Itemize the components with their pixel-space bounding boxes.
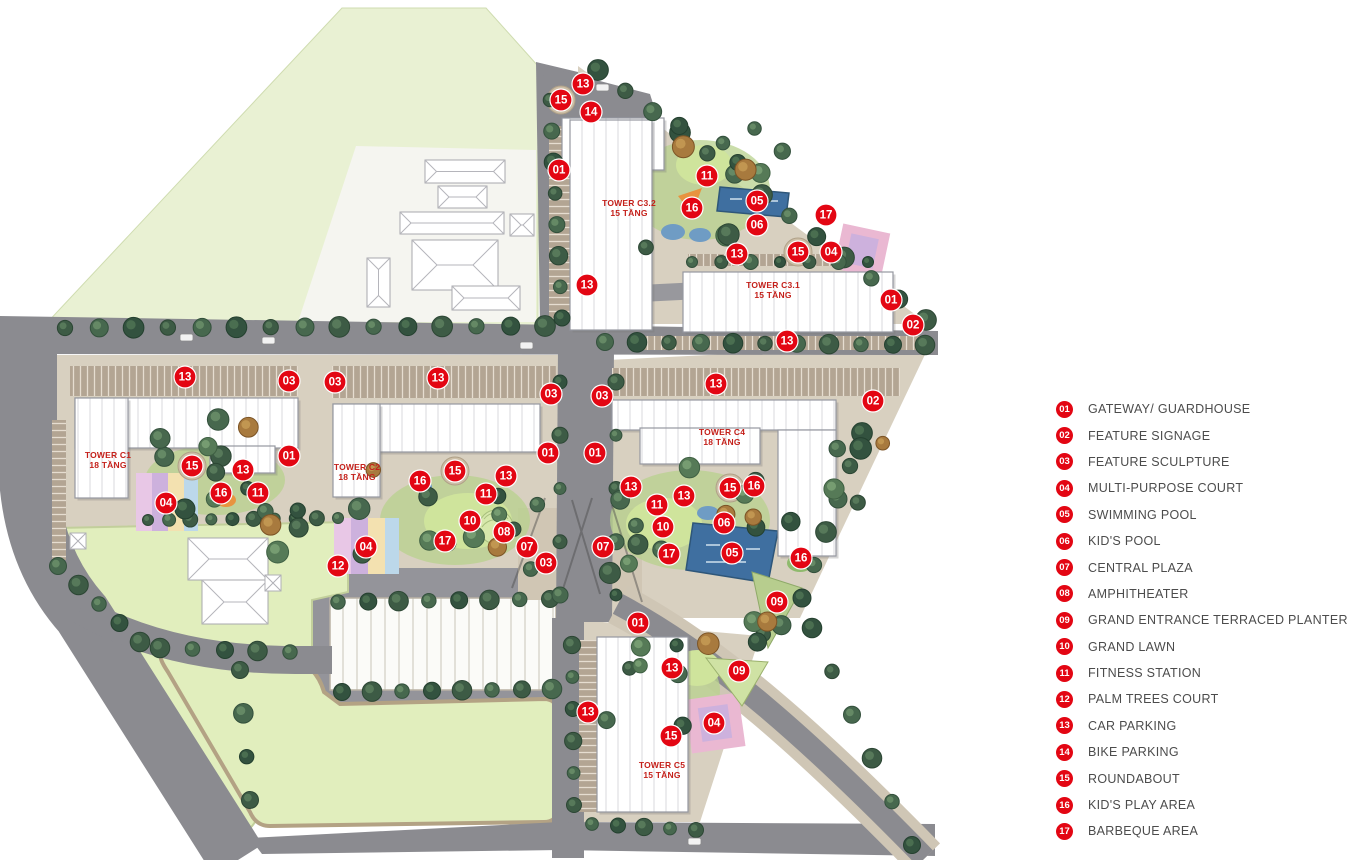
map-marker-11: 11	[646, 494, 668, 516]
legend-number-badge: 08	[1056, 585, 1073, 602]
map-marker-13: 13	[576, 274, 598, 296]
legend-label: GRAND LAWN	[1088, 640, 1175, 654]
map-marker-07: 07	[516, 536, 538, 558]
legend-item-16: 16 KID'S PLAY AREA	[1056, 792, 1346, 818]
svg-text:15: 15	[449, 466, 462, 478]
map-marker-01: 01	[537, 442, 559, 464]
legend-number-badge: 10	[1056, 638, 1073, 655]
svg-text:13: 13	[581, 280, 594, 292]
map-marker-13: 13	[232, 459, 254, 481]
legend-label: BARBEQUE AREA	[1088, 824, 1198, 838]
legend-item-03: 03 FEATURE SCULPTURE	[1056, 449, 1346, 475]
svg-text:07: 07	[597, 542, 610, 554]
legend-number-badge: 01	[1056, 401, 1073, 418]
map-marker-16: 16	[409, 470, 431, 492]
svg-text:05: 05	[726, 548, 739, 560]
map-marker-04: 04	[355, 536, 377, 558]
svg-text:03: 03	[540, 558, 553, 570]
legend-number-badge: 03	[1056, 453, 1073, 470]
map-marker-05: 05	[746, 190, 768, 212]
tower-label: TOWER C515 TẦNG	[639, 760, 685, 780]
legend-label: GATEWAY/ GUARDHOUSE	[1088, 402, 1250, 416]
svg-text:13: 13	[781, 336, 794, 348]
map-marker-05: 05	[721, 542, 743, 564]
legend-item-11: 11 FITNESS STATION	[1056, 660, 1346, 686]
svg-text:17: 17	[439, 536, 452, 548]
svg-text:06: 06	[751, 220, 764, 232]
car	[688, 838, 701, 845]
map-marker-13: 13	[705, 373, 727, 395]
map-marker-10: 10	[459, 510, 481, 532]
map-marker-15: 15	[660, 725, 682, 747]
svg-text:TOWER C3.1: TOWER C3.1	[746, 280, 800, 290]
legend-label: CENTRAL PLAZA	[1088, 561, 1193, 575]
svg-text:01: 01	[589, 448, 602, 460]
parking-lot	[330, 598, 556, 690]
legend: 01 GATEWAY/ GUARDHOUSE 02 FEATURE SIGNAG…	[1056, 396, 1346, 845]
map-marker-01: 01	[584, 442, 606, 464]
svg-text:17: 17	[820, 210, 833, 222]
legend-number-badge: 07	[1056, 559, 1073, 576]
svg-text:18 TẦNG: 18 TẦNG	[703, 437, 740, 447]
map-marker-17: 17	[658, 543, 680, 565]
svg-text:06: 06	[718, 518, 731, 530]
legend-label: SWIMMING POOL	[1088, 508, 1197, 522]
legend-number-badge: 06	[1056, 533, 1073, 550]
tower-building	[75, 398, 128, 498]
map-marker-12: 12	[327, 555, 349, 577]
svg-text:02: 02	[867, 396, 880, 408]
legend-label: GRAND ENTRANCE TERRACED PLANTER	[1088, 613, 1348, 627]
map-marker-08: 08	[493, 521, 515, 543]
svg-text:04: 04	[360, 542, 373, 554]
map-marker-03: 03	[591, 385, 613, 407]
map-marker-16: 16	[790, 547, 812, 569]
legend-number-badge: 14	[1056, 744, 1073, 761]
legend-item-09: 09 GRAND ENTRANCE TERRACED PLANTER	[1056, 607, 1346, 633]
legend-label: FEATURE SCULPTURE	[1088, 455, 1230, 469]
svg-text:15: 15	[792, 247, 805, 259]
svg-text:04: 04	[825, 247, 838, 259]
map-marker-13: 13	[572, 73, 594, 95]
legend-item-17: 17 BARBEQUE AREA	[1056, 818, 1346, 844]
map-marker-15: 15	[444, 460, 466, 482]
map-marker-16: 16	[210, 482, 232, 504]
svg-text:15 TẦNG: 15 TẦNG	[610, 208, 647, 218]
map-marker-13: 13	[620, 476, 642, 498]
legend-item-01: 01 GATEWAY/ GUARDHOUSE	[1056, 396, 1346, 422]
svg-text:18 TẦNG: 18 TẦNG	[89, 460, 126, 470]
svg-text:13: 13	[678, 491, 691, 503]
tower-label: TOWER C218 TẦNG	[334, 462, 380, 482]
svg-text:01: 01	[542, 448, 555, 460]
svg-text:13: 13	[710, 379, 723, 391]
svg-text:01: 01	[885, 295, 898, 307]
svg-text:03: 03	[545, 389, 558, 401]
legend-label: MULTI-PURPOSE COURT	[1088, 481, 1243, 495]
legend-number-badge: 12	[1056, 691, 1073, 708]
svg-text:15: 15	[555, 95, 568, 107]
map-marker-13: 13	[726, 243, 748, 265]
legend-number-badge: 02	[1056, 427, 1073, 444]
car	[262, 337, 275, 344]
svg-text:11: 11	[701, 171, 714, 183]
legend-label: BIKE PARKING	[1088, 745, 1179, 759]
svg-text:13: 13	[666, 663, 679, 675]
kids-pool-north	[689, 228, 711, 242]
map-marker-06: 06	[713, 512, 735, 534]
svg-text:TOWER C3.2: TOWER C3.2	[602, 198, 656, 208]
map-marker-09: 09	[766, 591, 788, 613]
map-marker-17: 17	[434, 530, 456, 552]
map-marker-01: 01	[880, 289, 902, 311]
map-marker-16: 16	[681, 197, 703, 219]
car	[180, 334, 193, 341]
svg-text:15: 15	[186, 461, 199, 473]
svg-text:08: 08	[498, 527, 511, 539]
legend-number-badge: 04	[1056, 480, 1073, 497]
legend-item-08: 08 AMPHITHEATER	[1056, 581, 1346, 607]
map-marker-06: 06	[746, 214, 768, 236]
legend-number-badge: 05	[1056, 506, 1073, 523]
svg-text:13: 13	[582, 707, 595, 719]
map-marker-17: 17	[815, 204, 837, 226]
svg-text:13: 13	[237, 465, 250, 477]
map-marker-03: 03	[324, 371, 346, 393]
svg-text:01: 01	[553, 165, 566, 177]
legend-number-badge: 16	[1056, 797, 1073, 814]
svg-text:15 TẦNG: 15 TẦNG	[754, 290, 791, 300]
map-marker-13: 13	[776, 330, 798, 352]
map-marker-02: 02	[902, 314, 924, 336]
map-marker-04: 04	[703, 712, 725, 734]
map-marker-11: 11	[696, 165, 718, 187]
svg-text:03: 03	[596, 391, 609, 403]
map-marker-13: 13	[427, 367, 449, 389]
map-marker-01: 01	[548, 159, 570, 181]
map-marker-13: 13	[174, 366, 196, 388]
svg-text:16: 16	[215, 488, 228, 500]
map-marker-13: 13	[495, 465, 517, 487]
svg-text:13: 13	[179, 372, 192, 384]
map-marker-13: 13	[577, 701, 599, 723]
map-marker-01: 01	[627, 612, 649, 634]
svg-text:05: 05	[751, 196, 764, 208]
svg-text:13: 13	[500, 471, 513, 483]
legend-item-13: 13 CAR PARKING	[1056, 713, 1346, 739]
map-marker-15: 15	[550, 89, 572, 111]
map-marker-11: 11	[247, 482, 269, 504]
svg-text:01: 01	[283, 451, 296, 463]
tower-label: TOWER C418 TẦNG	[699, 427, 745, 447]
svg-text:09: 09	[771, 597, 784, 609]
legend-label: KID'S PLAY AREA	[1088, 798, 1195, 812]
legend-item-12: 12 PALM TREES COURT	[1056, 686, 1346, 712]
legend-number-badge: 13	[1056, 717, 1073, 734]
svg-text:11: 11	[252, 488, 265, 500]
legend-number-badge: 11	[1056, 665, 1073, 682]
svg-text:TOWER C4: TOWER C4	[699, 427, 745, 437]
map-marker-13: 13	[661, 657, 683, 679]
svg-text:13: 13	[731, 249, 744, 261]
car	[520, 342, 533, 349]
legend-label: ROUNDABOUT	[1088, 772, 1180, 786]
map-marker-02: 02	[862, 390, 884, 412]
svg-text:13: 13	[432, 373, 445, 385]
svg-text:12: 12	[332, 561, 345, 573]
map-marker-15: 15	[181, 455, 203, 477]
legend-label: PALM TREES COURT	[1088, 692, 1219, 706]
svg-text:07: 07	[521, 542, 534, 554]
tower-label: TOWER C118 TẦNG	[85, 450, 131, 470]
map-marker-16: 16	[743, 475, 765, 497]
tower-building	[333, 404, 380, 497]
legend-item-14: 14 BIKE PARKING	[1056, 739, 1346, 765]
legend-item-05: 05 SWIMMING POOL	[1056, 502, 1346, 528]
svg-text:13: 13	[577, 79, 590, 91]
legend-label: AMPHITHEATER	[1088, 587, 1189, 601]
svg-text:16: 16	[414, 476, 427, 488]
svg-text:TOWER C5: TOWER C5	[639, 760, 685, 770]
svg-text:03: 03	[283, 376, 296, 388]
map-marker-13: 13	[673, 485, 695, 507]
tower-building	[570, 120, 652, 330]
map-marker-10: 10	[652, 516, 674, 538]
svg-text:02: 02	[907, 320, 920, 332]
map-marker-04: 04	[820, 241, 842, 263]
map-marker-01: 01	[278, 445, 300, 467]
legend-item-06: 06 KID'S POOL	[1056, 528, 1346, 554]
map-marker-15: 15	[787, 241, 809, 263]
svg-text:10: 10	[657, 522, 670, 534]
svg-text:TOWER C1: TOWER C1	[85, 450, 131, 460]
legend-item-15: 15 ROUNDABOUT	[1056, 765, 1346, 791]
map-marker-03: 03	[278, 370, 300, 392]
svg-text:13: 13	[625, 482, 638, 494]
svg-text:TOWER C2: TOWER C2	[334, 462, 380, 472]
legend-label: FITNESS STATION	[1088, 666, 1201, 680]
svg-text:11: 11	[651, 500, 664, 512]
legend-number-badge: 17	[1056, 823, 1073, 840]
map-marker-04: 04	[155, 492, 177, 514]
svg-text:04: 04	[160, 498, 173, 510]
legend-label: FEATURE SIGNAGE	[1088, 429, 1210, 443]
legend-item-10: 10 GRAND LAWN	[1056, 634, 1346, 660]
legend-label: KID'S POOL	[1088, 534, 1161, 548]
map-marker-03: 03	[535, 552, 557, 574]
svg-text:01: 01	[632, 618, 645, 630]
legend-item-07: 07 CENTRAL PLAZA	[1056, 554, 1346, 580]
svg-text:15: 15	[724, 483, 737, 495]
svg-text:16: 16	[748, 481, 761, 493]
svg-text:14: 14	[585, 107, 598, 119]
svg-text:11: 11	[480, 489, 493, 501]
svg-text:16: 16	[795, 553, 808, 565]
tower-building	[612, 400, 836, 430]
svg-text:15 TẦNG: 15 TẦNG	[643, 770, 680, 780]
map-marker-11: 11	[475, 483, 497, 505]
svg-text:18 TẦNG: 18 TẦNG	[338, 472, 375, 482]
legend-number-badge: 09	[1056, 612, 1073, 629]
legend-item-04: 04 MULTI-PURPOSE COURT	[1056, 475, 1346, 501]
map-marker-03: 03	[540, 383, 562, 405]
map-marker-14: 14	[580, 101, 602, 123]
map-marker-09: 09	[728, 660, 750, 682]
svg-text:16: 16	[686, 203, 699, 215]
svg-text:10: 10	[464, 516, 477, 528]
svg-text:03: 03	[329, 377, 342, 389]
map-marker-15: 15	[719, 477, 741, 499]
svg-text:15: 15	[665, 731, 678, 743]
svg-text:17: 17	[663, 549, 676, 561]
map-marker-07: 07	[592, 536, 614, 558]
svg-text:04: 04	[708, 718, 721, 730]
legend-label: CAR PARKING	[1088, 719, 1177, 733]
site-plan-page: TOWER C118 TẦNGTOWER C218 TẦNGTOWER C3.1…	[0, 0, 1349, 860]
car	[596, 84, 609, 91]
legend-number-badge: 15	[1056, 770, 1073, 787]
legend-item-02: 02 FEATURE SIGNAGE	[1056, 422, 1346, 448]
svg-text:09: 09	[733, 666, 746, 678]
